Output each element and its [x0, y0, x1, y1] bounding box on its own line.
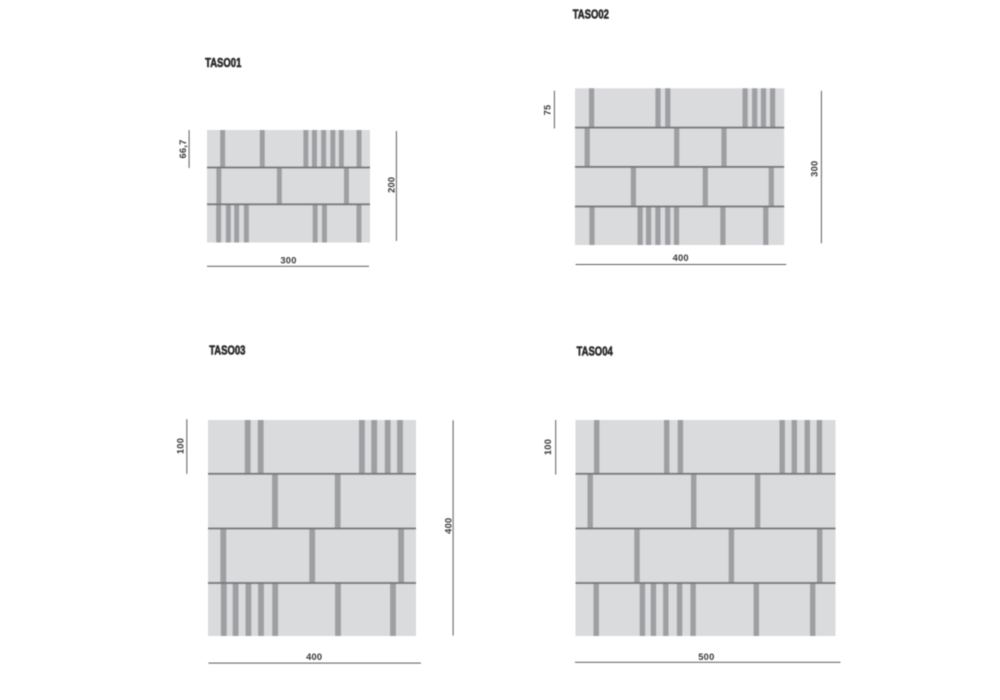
svg-text:300: 300	[810, 161, 820, 177]
svg-text:400: 400	[673, 253, 689, 263]
svg-text:TASO02: TASO02	[573, 8, 609, 22]
svg-text:66,7: 66,7	[178, 139, 188, 158]
svg-text:100: 100	[543, 439, 553, 455]
svg-text:TASO04: TASO04	[577, 345, 614, 359]
svg-text:300: 300	[280, 256, 296, 266]
svg-text:75: 75	[543, 105, 553, 116]
svg-text:200: 200	[386, 177, 396, 193]
svg-text:400: 400	[444, 518, 454, 534]
svg-text:400: 400	[306, 652, 322, 662]
svg-text:TASO03: TASO03	[209, 344, 245, 358]
svg-text:TASO01: TASO01	[205, 57, 242, 71]
svg-text:500: 500	[698, 652, 714, 662]
svg-text:100: 100	[176, 438, 186, 454]
